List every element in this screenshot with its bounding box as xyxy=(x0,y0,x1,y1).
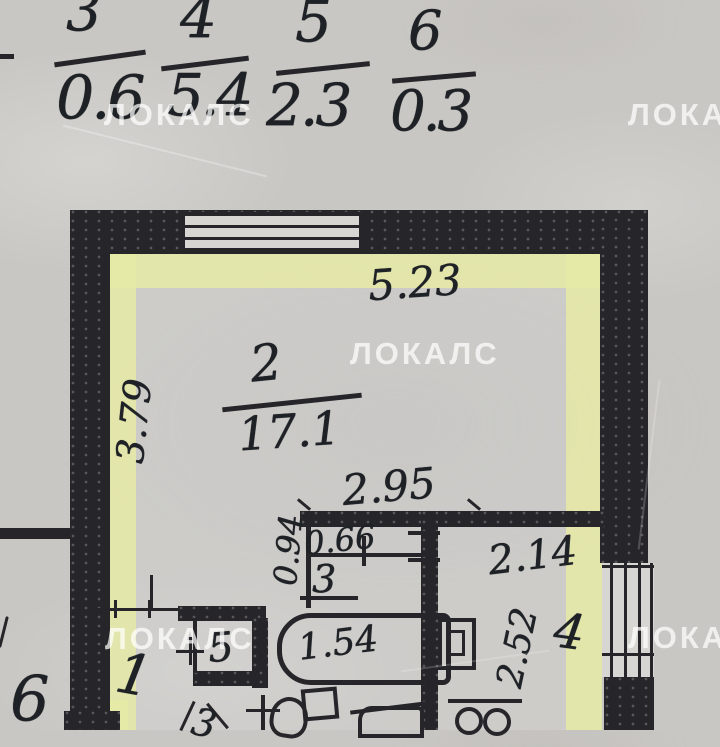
fraction-2-numerator: 4 xyxy=(180,0,217,46)
left-wall xyxy=(70,210,110,730)
sink-inner-detail xyxy=(446,630,465,656)
cutoff-fraction-bar xyxy=(0,54,14,59)
hall-vertical-line xyxy=(150,575,153,609)
stove-burner-1 xyxy=(455,707,483,735)
closet3-number: 3 xyxy=(312,560,336,598)
neighbor-wall-stub xyxy=(0,528,70,539)
room6-number: 6 xyxy=(10,668,49,730)
watermark: ЛОКАЛС xyxy=(104,99,254,130)
dim-room2-left: 3.79 xyxy=(110,369,158,472)
bath-divider-line xyxy=(261,695,265,730)
closet5-bottom-wall xyxy=(193,671,268,686)
dim-room4-width: 2.14 xyxy=(486,531,579,582)
window-top-frame-line xyxy=(185,212,359,216)
hall-dimension-line xyxy=(97,608,178,611)
fraction-4-numerator: 6 xyxy=(408,4,442,58)
window-top-mid-line-1 xyxy=(185,225,359,228)
dim-room2-top: 5.23 xyxy=(367,259,463,307)
stove-burner-2 xyxy=(483,708,511,736)
window-top-mid-line-2 xyxy=(185,237,359,240)
fraction-3-denominator: 2.3 xyxy=(266,76,349,134)
watermark: ЛОКАЛС xyxy=(628,99,720,130)
paper-crease-1 xyxy=(63,125,267,178)
watermark: ЛОКАЛС xyxy=(628,622,720,653)
room4-number: 4 xyxy=(551,606,588,658)
kitchen-wall-tick-1 xyxy=(408,531,440,535)
left-edge-pen-mark xyxy=(0,616,9,648)
dim-closet3-depth: 0.94 xyxy=(268,499,309,601)
highlight-band-top xyxy=(108,252,602,288)
hall-dimension-tick-1 xyxy=(114,600,117,618)
fraction-1-numerator: 3 xyxy=(66,0,102,40)
room2-number: 2 xyxy=(247,336,284,389)
window-right-pane-1 xyxy=(610,563,613,677)
window-top-bottom-frame-line xyxy=(185,248,359,252)
room2-area: 17.1 xyxy=(237,404,342,457)
fraction-3-numerator: 5 xyxy=(295,0,332,50)
watermark: ЛОКАЛС xyxy=(105,623,255,654)
window-right-pane-2 xyxy=(624,563,627,677)
right-wall-lower xyxy=(604,677,654,730)
right-wall-upper xyxy=(600,218,648,563)
fraction-4-denominator: 0.3 xyxy=(390,84,470,140)
bathtub-label: 1.54 xyxy=(296,621,380,667)
watermark: ЛОКАЛС xyxy=(350,338,500,369)
window-symbol-top xyxy=(180,212,364,252)
left-wall-bottom-corner xyxy=(64,711,120,730)
dim-closet3-width: 0.66 xyxy=(303,520,377,559)
dim-room2-bottom: 2.95 xyxy=(340,462,437,512)
kitchen-wall-tick-2 xyxy=(408,558,440,562)
scanned-floorplan-page: { "watermark": { "text": "ЛОКАЛС" }, "fr… xyxy=(0,0,720,730)
